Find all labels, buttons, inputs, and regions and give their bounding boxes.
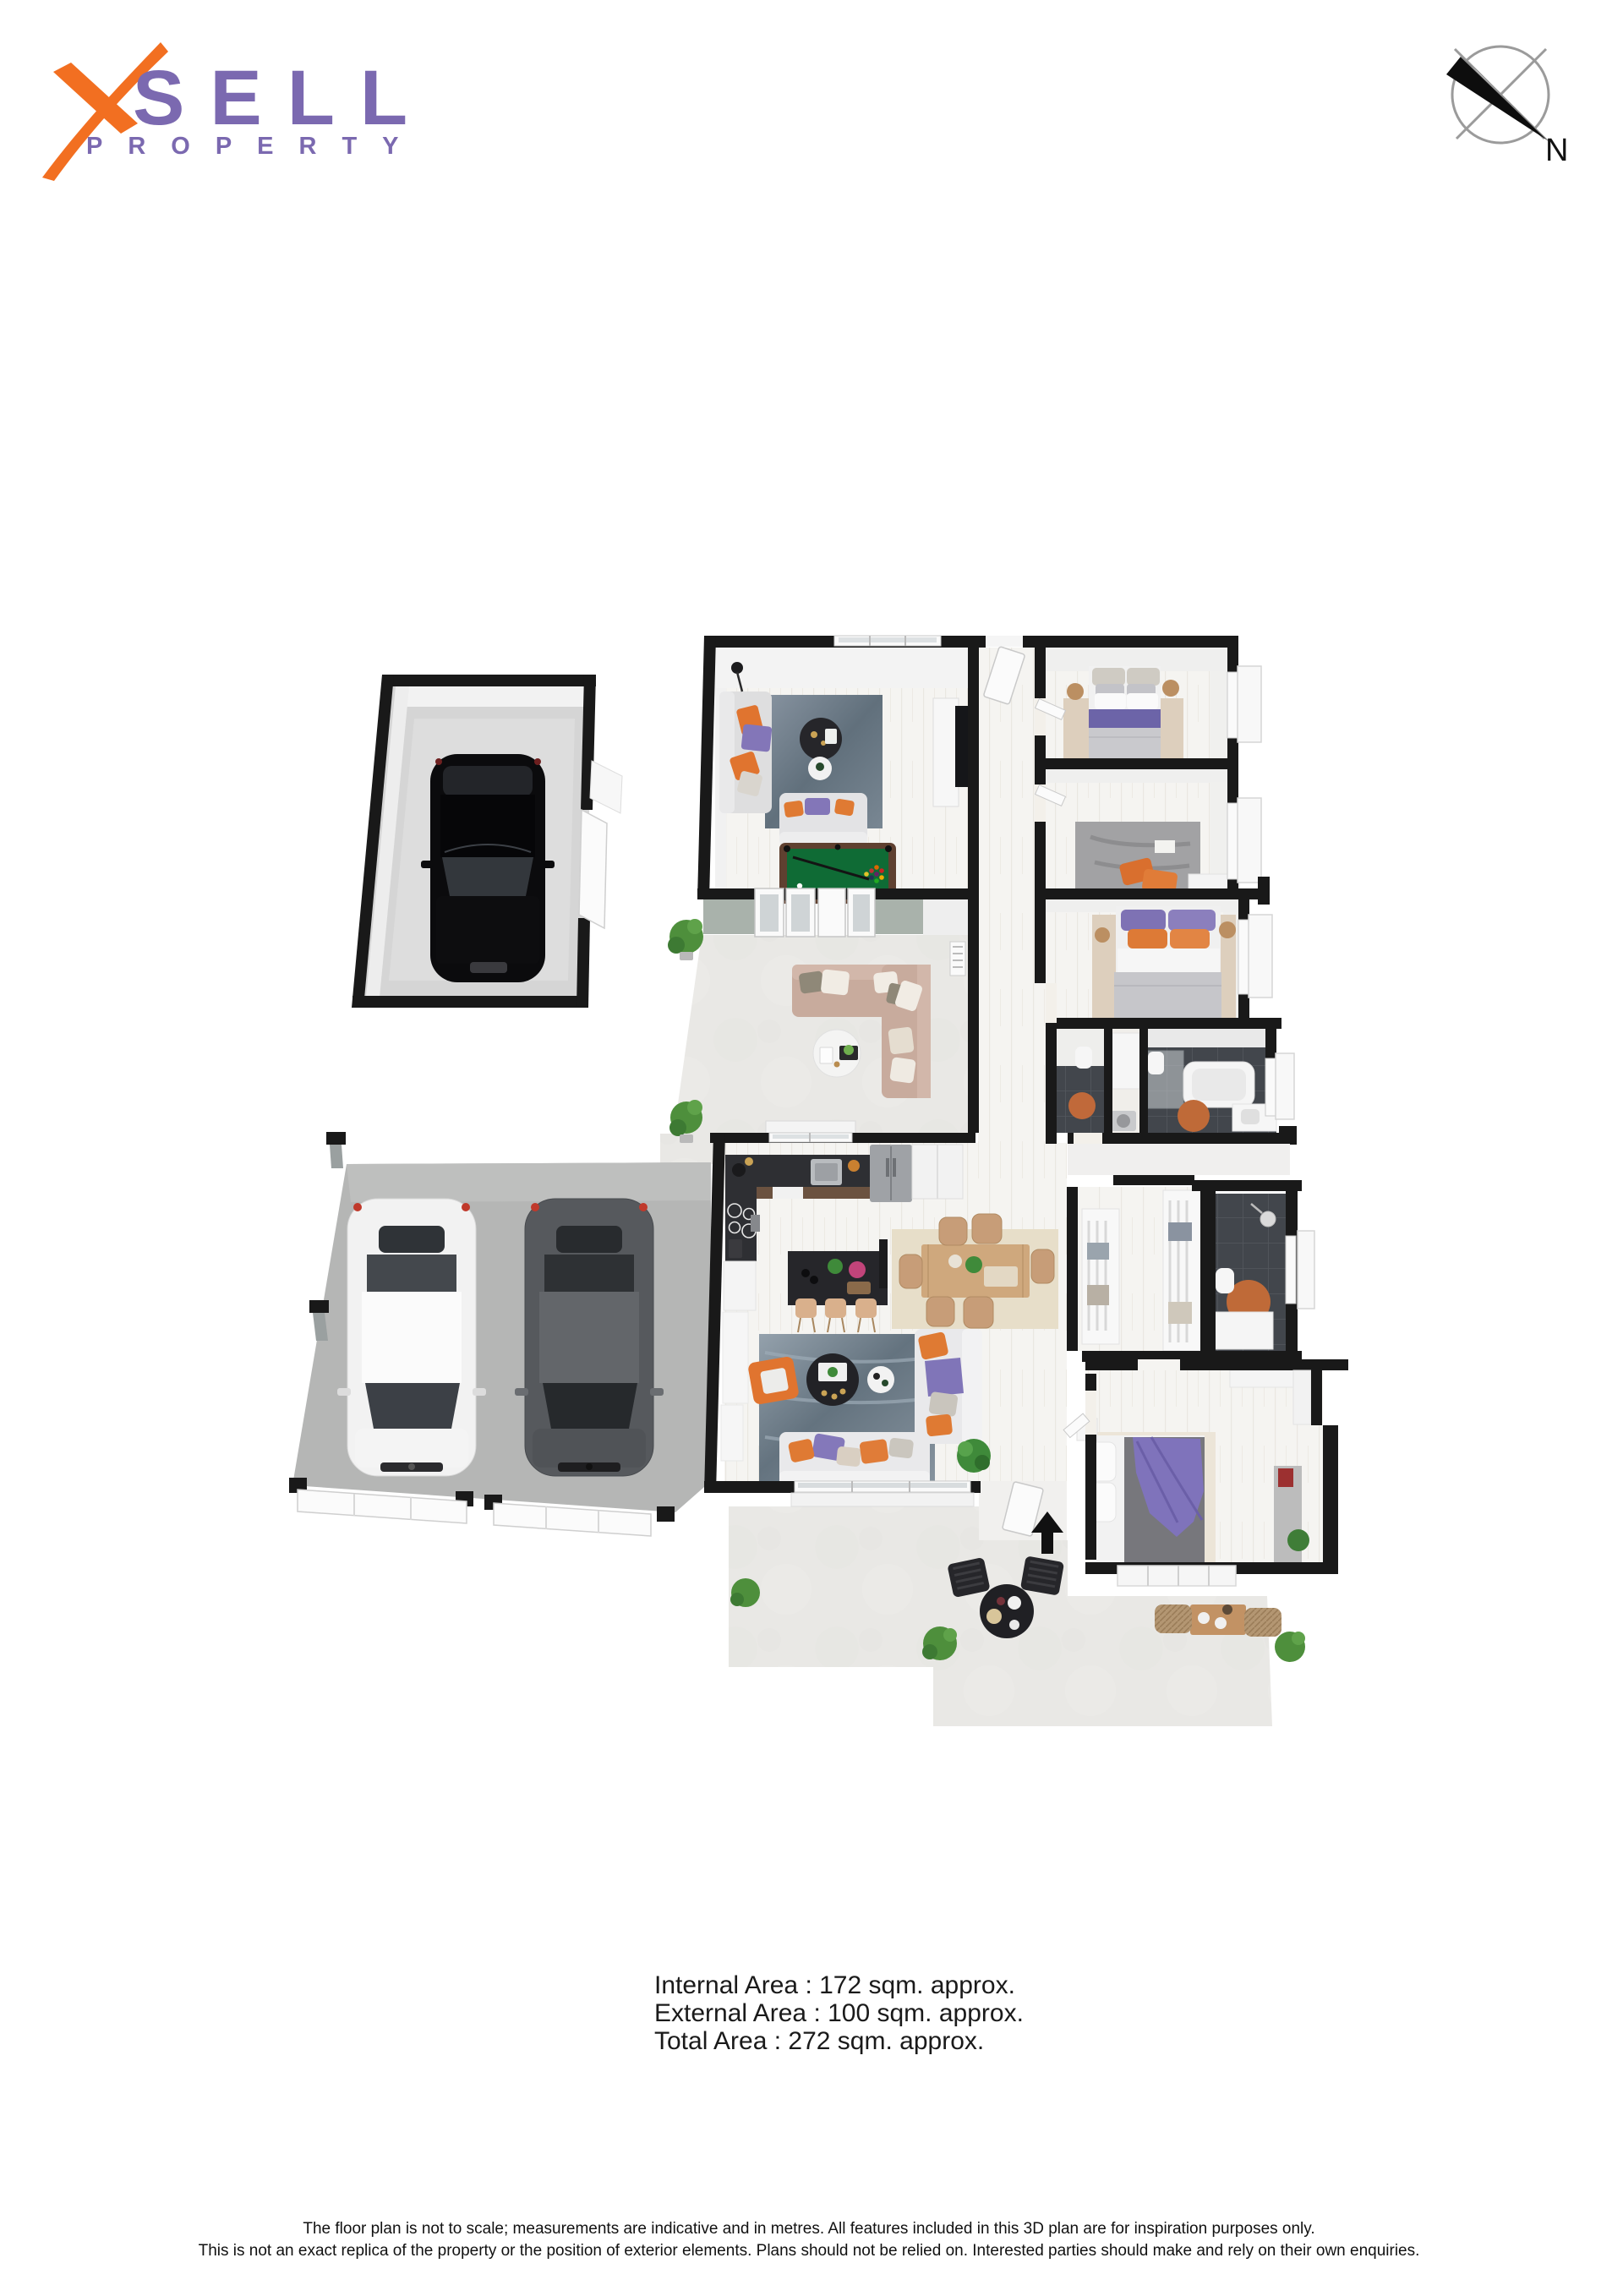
svg-text:N: N <box>1545 133 1568 168</box>
svg-text:SELL: SELL <box>133 55 433 141</box>
svg-text:This is not an exact replica o: This is not an exact replica of the prop… <box>199 2242 1420 2260</box>
svg-text:Total Area : 272 sqm. approx.: Total Area : 272 sqm. approx. <box>654 2027 984 2055</box>
svg-text:External Area : 100 sqm. appro: External Area : 100 sqm. approx. <box>654 1999 1024 2027</box>
svg-text:The floor plan is not to scale: The floor plan is not to scale; measurem… <box>303 2220 1314 2238</box>
svg-text:Internal Area : 172 sqm. appro: Internal Area : 172 sqm. approx. <box>654 1971 1015 1999</box>
svg-text:PROPERTY: PROPERTY <box>86 133 424 160</box>
